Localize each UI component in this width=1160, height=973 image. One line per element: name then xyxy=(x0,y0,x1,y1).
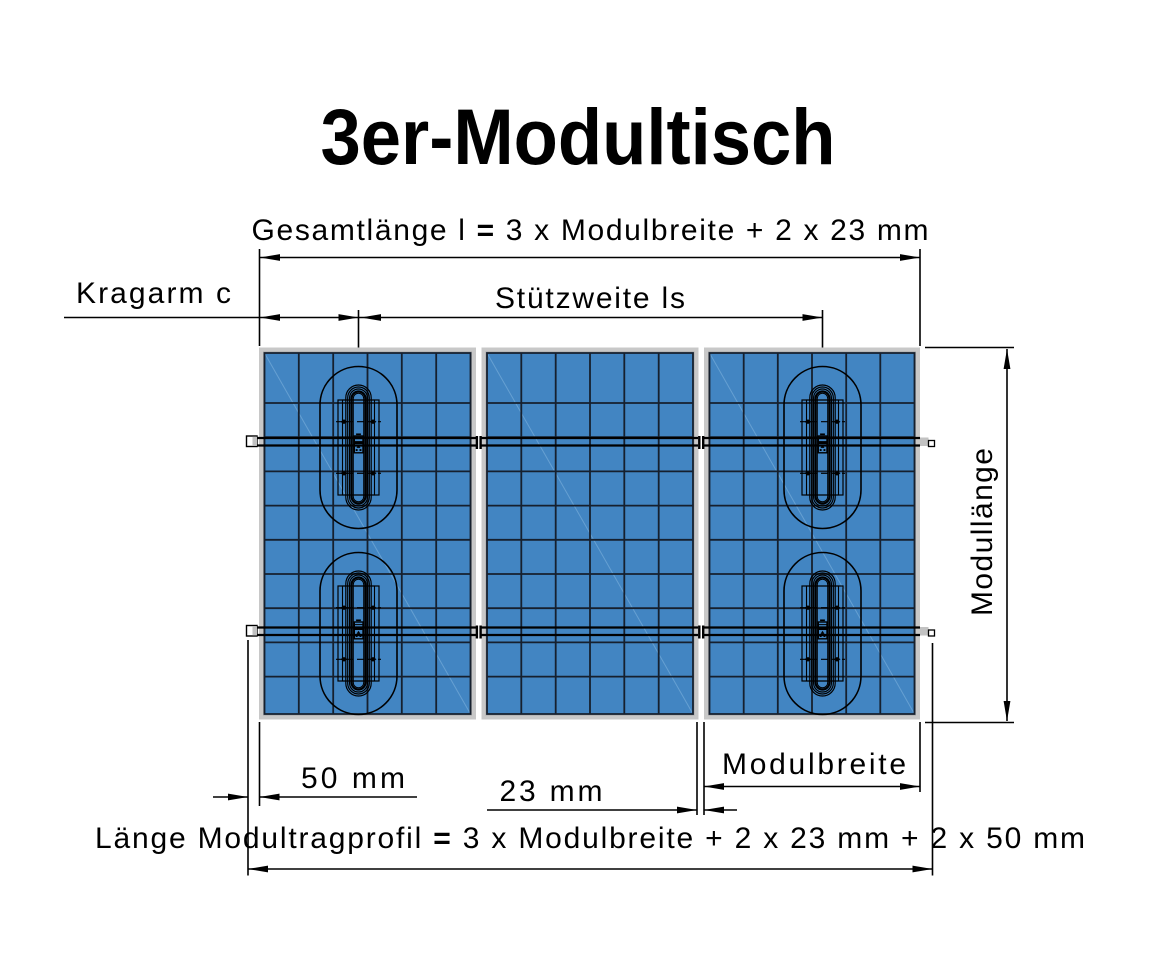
svg-text:Länge Modultragprofil = 3 x Mo: Länge Modultragprofil = 3 x Modulbreite … xyxy=(95,822,1085,855)
svg-text:3er-Modultisch: 3er-Modultisch xyxy=(321,92,836,181)
svg-text:Gesamtlänge l = 3 x Modulbreit: Gesamtlänge l = 3 x Modulbreite + 2 x 23… xyxy=(252,214,929,247)
svg-text:Modulbreite: Modulbreite xyxy=(722,748,906,781)
svg-text:23 mm: 23 mm xyxy=(500,775,603,808)
svg-text:Kragarm c: Kragarm c xyxy=(76,277,231,310)
svg-text:Stützweite ls: Stützweite ls xyxy=(495,282,685,315)
svg-text:50 mm: 50 mm xyxy=(301,762,405,795)
